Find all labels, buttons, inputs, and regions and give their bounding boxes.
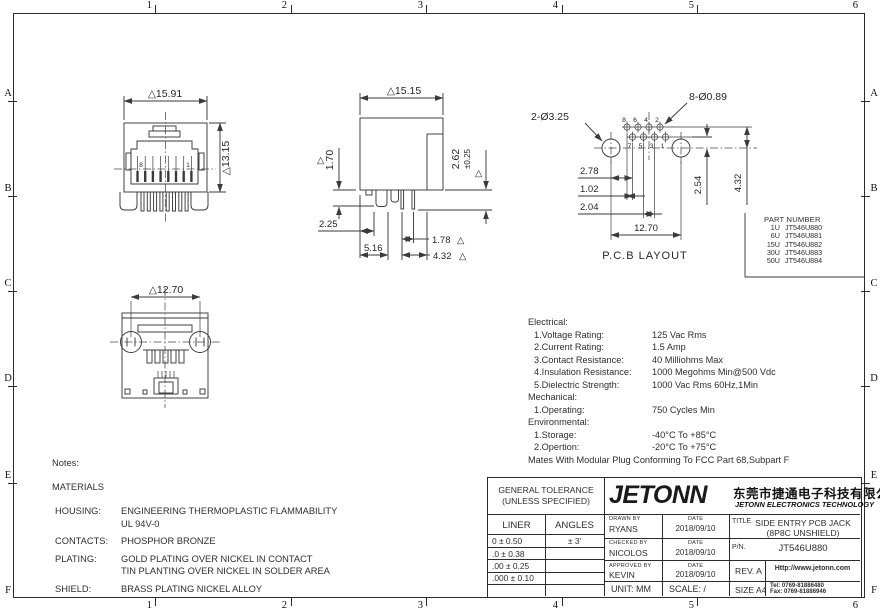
approved-date-label: DATE xyxy=(662,563,729,569)
drawn-by-name: RYANS xyxy=(609,524,638,534)
approved-date: 2018/09/10 xyxy=(662,570,729,579)
environmental-title: Environmental: xyxy=(528,416,652,429)
side-dim-width: △15.15 xyxy=(387,85,422,97)
drawing-title-line1: SIDE ENTRY PCB JACK xyxy=(746,518,860,528)
material-label: CONTACTS: xyxy=(55,535,121,548)
material-label: HOUSING: xyxy=(55,505,121,530)
drawn-by-label: DRAWN BY xyxy=(609,516,641,522)
tolerance-header-line1: GENERAL TOLERANCE xyxy=(488,485,604,496)
spec-label: 1.Voltage Rating: xyxy=(528,329,652,342)
spec-label: 4.Insulation Resistance: xyxy=(528,366,652,379)
checked-date: 2018/09/10 xyxy=(662,548,729,557)
checked-by-name: NICOLOS xyxy=(609,548,648,558)
front-dim-height: △13.15 xyxy=(220,141,232,176)
part-number-value: JT546U880 xyxy=(746,543,860,554)
unit-label: UNIT: MM xyxy=(611,584,651,594)
front-view-lines xyxy=(120,96,226,211)
approved-by-label: APPROVED BY xyxy=(609,563,651,569)
material-label: SHIELD: xyxy=(55,583,121,596)
side-view-lines xyxy=(318,93,492,260)
pcb-pin-3: 3 xyxy=(650,143,654,150)
front-pin1-label: 1 xyxy=(186,162,190,169)
spec-row: 1.Voltage Rating:125 Vac Rms xyxy=(528,329,868,342)
side-dim-a: 2.25 xyxy=(319,219,338,230)
spec-row: 2.Current Rating:1.5 Amp xyxy=(528,341,868,354)
size-value: SIZE A4 xyxy=(735,585,767,595)
pcb-dim-b: 1.02 xyxy=(580,184,599,195)
pcb-dim-c: 2.04 xyxy=(580,202,599,213)
spec-row: 1.Operating:750 Cycles Min xyxy=(528,404,868,417)
bottom-view-lines xyxy=(121,297,211,398)
pcb-layout-title: P.C.B LAYOUT xyxy=(602,250,688,262)
pcb-pin-2: 2 xyxy=(655,117,659,124)
angle-tolerance: ± 3' xyxy=(545,536,604,546)
spec-label: 1.Storage: xyxy=(528,429,652,442)
material-row: SHIELD: BRASS PLATING NICKEL ALLOY xyxy=(52,583,472,596)
pcb-dim-a: 2.78 xyxy=(580,166,599,177)
side-dim-step: 1.70 xyxy=(324,150,336,171)
pcb-pin-7: 7 xyxy=(628,143,632,150)
pcb-dim-f: 4.32 xyxy=(733,174,744,193)
angles-header: ANGLES xyxy=(545,520,604,531)
drawn-date-label: DATE xyxy=(662,516,729,522)
tolerance-row-3: .00 ± 0.25 xyxy=(492,561,529,571)
spec-label: 5.Dielectric Strength: xyxy=(528,379,652,392)
side-tri-4: △ xyxy=(459,251,467,262)
tolerance-header-line2: (UNLESS SPECIFIED) xyxy=(488,496,604,507)
tel: Tel: 0769-81886480 xyxy=(770,583,824,589)
spec-value: 125 Vac Rms xyxy=(652,329,706,342)
pcb-pin-8: 8 xyxy=(622,117,626,124)
side-dim-b: 5.16 xyxy=(364,243,383,254)
pcb-layout-lines xyxy=(578,103,752,240)
materials-title: MATERIALS xyxy=(52,481,472,494)
spec-value: -40°C To +85°C xyxy=(652,429,716,442)
spec-label: 3.Contact Resistance: xyxy=(528,354,652,367)
liner-header: LINER xyxy=(488,520,545,531)
fax: Fax: 0769-81886946 xyxy=(770,589,826,595)
company-name-en: JETONN ELECTRONICS TECHNOLOGY xyxy=(735,500,874,509)
pcb-dim-e: 2.54 xyxy=(693,176,704,195)
material-value: BRASS PLATING NICKEL ALLOY xyxy=(121,583,262,596)
spec-row: 3.Contact Resistance:40 Milliohms Max xyxy=(528,354,868,367)
pcb-dim-d: 12.70 xyxy=(634,223,658,234)
pcb-callout-small: 8-Ø0.89 xyxy=(689,91,727,103)
tolerance-row-2: .0 ± 0.38 xyxy=(492,549,525,559)
checked-by-label: CHECKED BY xyxy=(609,540,647,546)
bottom-dim-width: △12.70 xyxy=(149,284,184,296)
spec-row: 1.Storage:-40°C To +85°C xyxy=(528,429,868,442)
side-dim-pin-tol: ±0.25 xyxy=(463,148,472,169)
material-value: ENGINEERING THERMOPLASTIC FLAMMABILITYUL… xyxy=(121,505,337,530)
spec-label: 2.Opertion: xyxy=(528,441,652,454)
part-pn: JT546U884 xyxy=(785,257,822,265)
pcb-pin-5: 5 xyxy=(639,143,643,150)
scale-label: SCALE: / xyxy=(669,584,706,594)
website: Http://www.jetonn.com xyxy=(765,565,860,572)
part-number-table: PART NUMBER 1U JT546U880 6U JT546U881 15… xyxy=(747,216,863,265)
front-pin8-label: 8 xyxy=(139,162,143,169)
pcb-callout-big: 2-Ø3.25 xyxy=(531,111,569,123)
spec-label: 1.Operating: xyxy=(528,404,652,417)
side-dim-d: 4.32 xyxy=(433,251,452,262)
drawn-date: 2018/09/10 xyxy=(662,524,729,533)
material-row: CONTACTS: PHOSPHOR BRONZE xyxy=(52,535,472,548)
specifications: Electrical: 1.Voltage Rating:125 Vac Rms… xyxy=(528,316,868,467)
spec-row: 2.Opertion:-20°C To +75°C xyxy=(528,441,868,454)
pn-label: P/N. xyxy=(732,544,746,551)
spec-value: -20°C To +75°C xyxy=(652,441,716,454)
spec-value: 1000 Vac Rms 60Hz,1Min xyxy=(652,379,758,392)
spec-value: 1000 Megohms Min@500 Vdc xyxy=(652,366,776,379)
side-dim-pin: 2.62 xyxy=(450,149,462,170)
spec-value: 750 Cycles Min xyxy=(652,404,715,417)
drawing-title-line2: (8P8C UNSHIELD) xyxy=(746,528,860,538)
spec-value: 40 Milliohms Max xyxy=(652,354,723,367)
rev-value: REV. A xyxy=(735,566,762,576)
spec-label: 2.Current Rating: xyxy=(528,341,652,354)
pcb-pin-6: 6 xyxy=(633,117,637,124)
spec-footnote: Mates With Modular Plug Conforming To FC… xyxy=(528,454,868,467)
material-value: PHOSPHOR BRONZE xyxy=(121,535,216,548)
spec-row: 4.Insulation Resistance:1000 Megohms Min… xyxy=(528,366,868,379)
tolerance-row-4: .000 ± 0.10 xyxy=(492,573,534,583)
notes-block: Notes: MATERIALS HOUSING: ENGINEERING TH… xyxy=(52,457,472,595)
jetonn-logo: JETONN xyxy=(609,481,707,510)
mechanical-title: Mechanical: xyxy=(528,391,652,404)
spec-row: 5.Dielectric Strength:1000 Vac Rms 60Hz,… xyxy=(528,379,868,392)
approved-by-name: KEVIN xyxy=(609,570,635,580)
material-row: PLATING: GOLD PLATING OVER NICKEL IN CON… xyxy=(52,553,472,578)
material-label: PLATING: xyxy=(55,553,121,578)
material-row: HOUSING: ENGINEERING THERMOPLASTIC FLAMM… xyxy=(52,505,472,530)
electrical-title: Electrical: xyxy=(528,316,652,329)
checked-date-label: DATE xyxy=(662,540,729,546)
front-dim-width: △15.91 xyxy=(148,88,183,100)
pcb-pin-4: 4 xyxy=(644,117,648,124)
part-qty: 50U xyxy=(747,257,780,265)
tolerance-row-1: 0 ± 0.50 xyxy=(492,536,522,546)
pcb-pin-1: 1 xyxy=(661,143,665,150)
side-tri-3: △ xyxy=(457,235,465,246)
side-dim-c: 1.78 xyxy=(432,235,451,246)
notes-title: Notes: xyxy=(52,457,472,470)
side-tri-2: △ xyxy=(475,168,483,179)
spec-value: 1.5 Amp xyxy=(652,341,686,354)
title-block: GENERAL TOLERANCE (UNLESS SPECIFIED) LIN… xyxy=(487,477,862,598)
part-row: 50U JT546U884 xyxy=(747,257,863,265)
material-value: GOLD PLATING OVER NICKEL IN CONTACTTIN P… xyxy=(121,553,330,578)
